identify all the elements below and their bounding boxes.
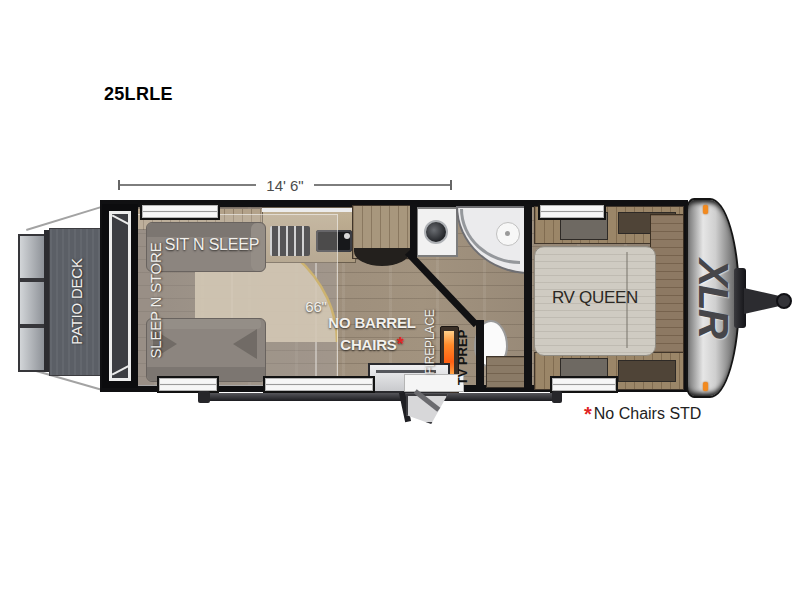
rail-end-cap [198,391,210,403]
rear-ramp-frame [102,204,138,388]
deck-railing-panel [18,280,46,326]
entry-steps [396,392,450,426]
rail-end-cap [552,391,562,403]
window [263,376,375,393]
footnote: * No Chairs STD [584,404,701,424]
rv-queen-label: RV QUEEN [536,288,654,308]
ramp-perspective-line [112,214,131,225]
dimension-rule-right [314,184,450,186]
deck-railing-panel [18,326,46,372]
bathroom-step-mat [486,356,528,388]
no-barrel-asterisk: * [397,334,404,354]
wall-tv-nook [476,320,484,390]
cabinet-opening [618,360,676,382]
deck-railing-panel [18,234,46,280]
page-title: 25LRLE [104,84,173,105]
faucet-icon [344,233,350,239]
marker-light [703,382,708,391]
wall-bedroom [524,204,532,388]
ramp-perspective-line [112,364,131,375]
fireplace-label: FIREPLACE [421,294,439,390]
dimension-line: 14' 6" [118,177,452,193]
dimension-label: 14' 6" [266,177,303,194]
tv-prep-label: TV PREP [452,322,474,392]
no-barrel-line1: NO BARREL [316,314,428,333]
marker-light [703,205,708,214]
window [538,203,606,220]
dimension-tick-right [450,180,452,190]
dimension-rule-left [120,184,256,186]
wall-kitchen-bath [410,204,417,258]
patio-deck-label: PATIO DECK [49,230,103,372]
underbody-rail [204,393,556,401]
xlr-logo-text: XLR [689,259,737,337]
no-barrel-chairs-label: NO BARREL CHAIRS* [316,314,428,355]
slide-width-label: 66" [294,298,338,315]
counter-backsplash [262,208,354,212]
footnote-asterisk: * [584,404,592,424]
no-barrel-line2: CHAIRS [340,336,396,353]
sit-n-sleep-label: SIT N SLEEP [158,236,266,254]
hitch-coupler [776,293,792,309]
bathroom-sink [424,220,448,244]
shower-drain-icon [505,231,510,236]
footnote-text: No Chairs STD [594,404,702,423]
floorplan-page: 25LRLE 14' 6" [0,0,800,600]
xlr-logo: XLR [690,238,736,358]
